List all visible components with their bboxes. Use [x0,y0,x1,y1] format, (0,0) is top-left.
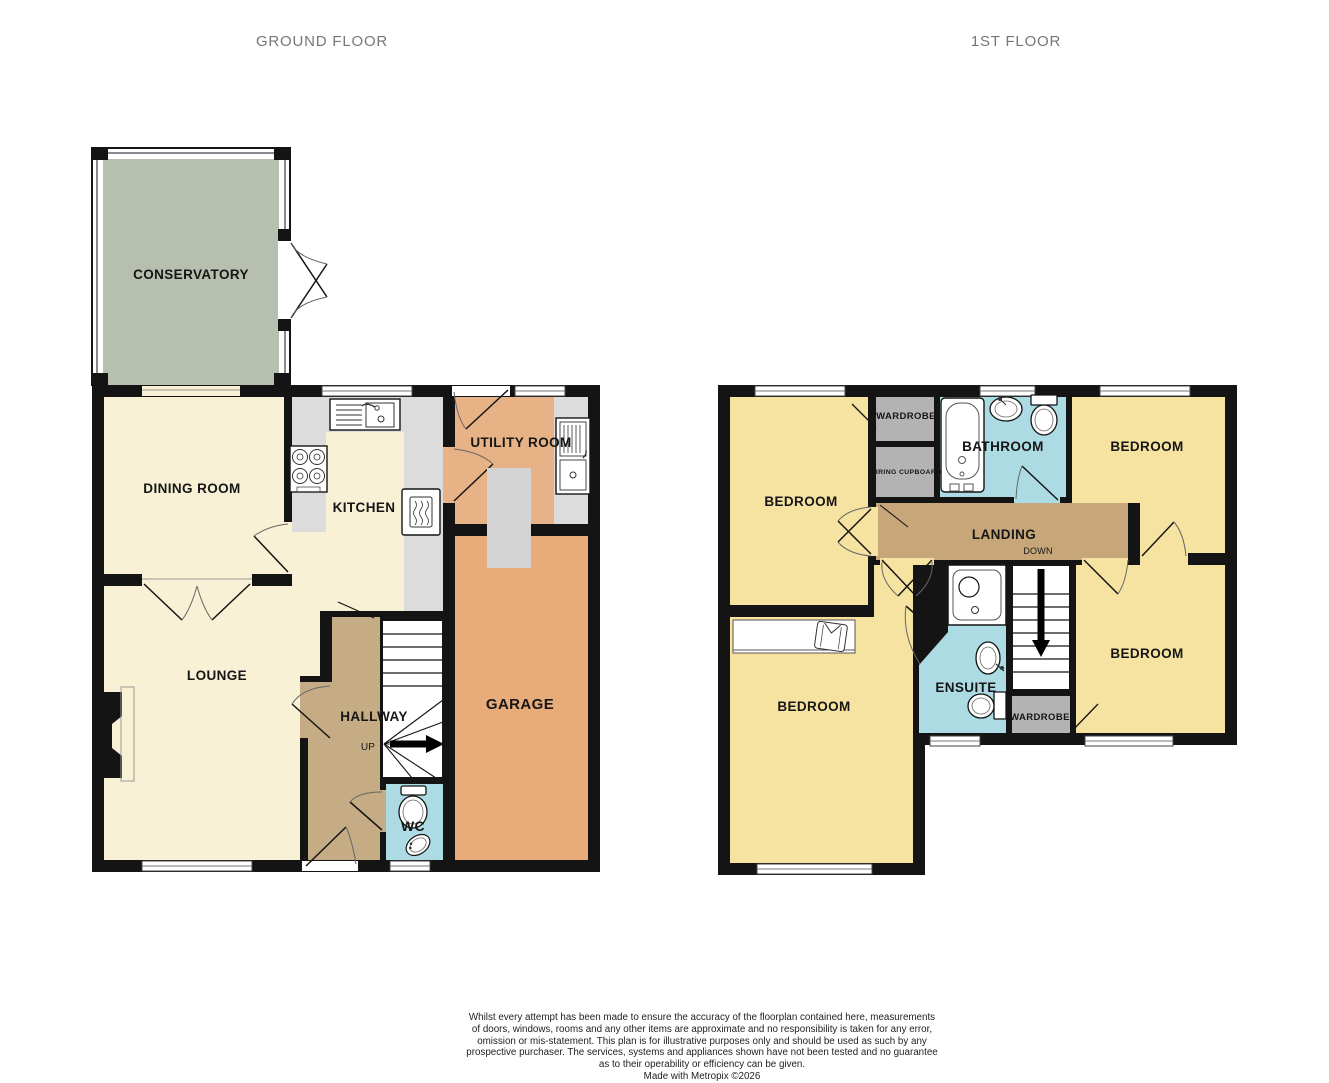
label-landing: LANDING [972,527,1036,542]
label-bedroom-top-left: BEDROOM [764,494,837,509]
window [322,386,412,396]
built-in-wardrobe [733,620,855,653]
room-lounge [104,586,320,860]
label-utility-room: UTILITY ROOM [470,435,571,450]
shirt-icon [814,621,847,652]
window [142,861,252,871]
disclaimer-line: Whilst every attempt has been made to en… [402,1012,1002,1024]
conservatory-opening [142,386,240,396]
floorplan-drawing: CONSERVATORY DINING ROOM KITCHEN UTILITY… [0,0,1329,1080]
label-kitchen: KITCHEN [333,500,396,515]
window [1100,386,1190,396]
chimney-breast [487,468,531,568]
ground-floor-plan: CONSERVATORY DINING ROOM KITCHEN UTILITY… [92,148,600,872]
floorplan-page: { "titles": { "ground": "GROUND FLOOR", … [0,0,1329,1080]
label-wardrobe-bottom: WARDROBE [1010,712,1070,723]
label-lounge: LOUNGE [187,668,247,683]
window [515,386,565,396]
label-stairs-up: UP [361,742,375,753]
stove-icon [290,446,327,492]
label-airing-cupboard: AIRING CUPBOARD [871,469,942,476]
label-hallway: HALLWAY [340,709,408,724]
window [980,386,1035,396]
toilet-icon [968,692,1006,719]
label-bedroom-bottom-right: BEDROOM [1110,646,1183,661]
made-with-credit: Made with Metropix ©2026 [402,1071,1002,1083]
stairs-ground [382,620,443,778]
window [757,864,872,874]
utility-sink-icon [556,418,590,494]
label-conservatory: CONSERVATORY [133,267,249,282]
label-wardrobe-top: WARDROBE [876,411,936,422]
shower-icon [948,565,1006,625]
toilet-icon [1031,395,1057,435]
window [930,736,980,746]
kitchen-sink-icon [330,399,400,430]
label-ensuite: ENSUITE [935,680,996,695]
label-bedroom-top-right: BEDROOM [1110,439,1183,454]
label-dining-room: DINING ROOM [143,481,240,496]
pedestal-sink-icon [990,397,1022,421]
boiler-icon [402,489,440,535]
disclaimer: Whilst every attempt has been made to en… [402,1012,1002,1083]
disclaimer-line: of doors, windows, rooms and any other i… [402,1024,1002,1036]
window [1085,736,1173,746]
first-floor-plan: BEDROOM WARDROBE AIRING CUPBOARD BATHROO… [718,385,1237,875]
disclaimer-line: prospective purchaser. The services, sys… [402,1047,1002,1059]
label-garage: GARAGE [486,696,554,713]
window [755,386,845,396]
label-bathroom: BATHROOM [962,439,1044,454]
label-wc: WC [401,818,425,834]
wall [1128,503,1140,565]
disclaimer-line: as to their operability or efficiency ca… [402,1059,1002,1071]
label-bedroom-bottom-left: BEDROOM [777,699,850,714]
window [390,861,430,871]
french-doors-icon [291,243,327,318]
disclaimer-line: omission or mis-statement. This plan is … [402,1036,1002,1048]
label-stairs-down: DOWN [1023,546,1052,556]
